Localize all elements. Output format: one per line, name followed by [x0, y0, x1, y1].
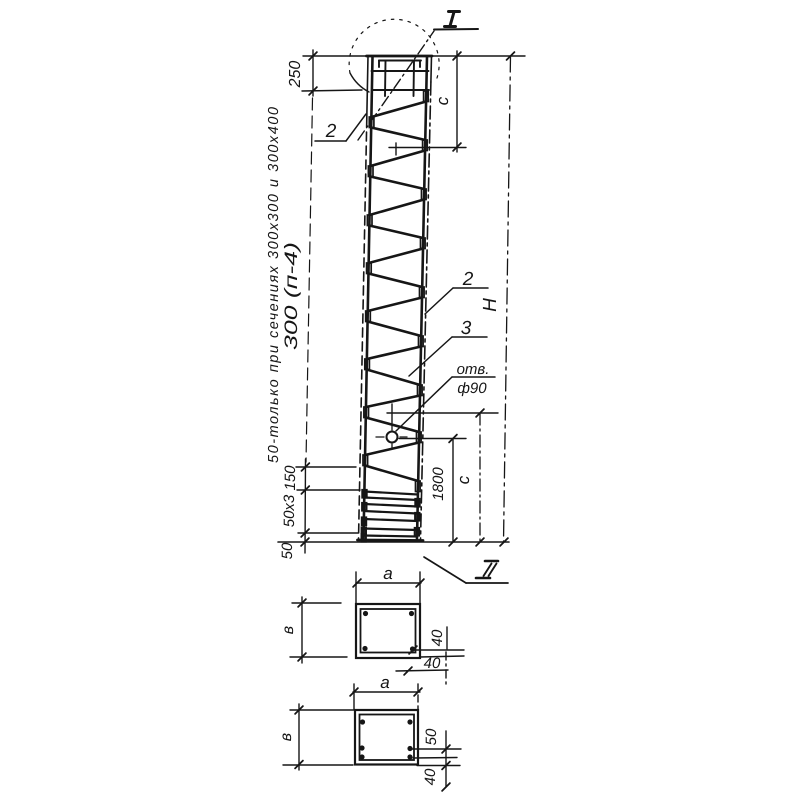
svg-text:50х3: 50х3 — [281, 494, 298, 527]
svg-text:отв.: отв. — [457, 361, 490, 378]
svg-text:40: 40 — [429, 629, 446, 646]
svg-text:300 (п-4): 300 (п-4) — [281, 242, 301, 350]
svg-text:40: 40 — [424, 655, 441, 672]
svg-text:в: в — [280, 626, 297, 634]
svg-text:3: 3 — [461, 318, 472, 339]
svg-text:250: 250 — [287, 61, 304, 89]
svg-text:ф90: ф90 — [457, 380, 487, 397]
svg-text:50: 50 — [423, 728, 440, 745]
svg-text:1800: 1800 — [430, 467, 447, 501]
svg-text:40: 40 — [422, 768, 439, 785]
svg-text:50: 50 — [279, 542, 296, 559]
svg-text:c: c — [454, 475, 473, 484]
svg-text:H: H — [480, 298, 501, 312]
svg-text:c: c — [433, 96, 452, 105]
svg-text:2: 2 — [462, 269, 474, 290]
svg-text:a: a — [383, 564, 392, 583]
svg-text:150: 150 — [282, 465, 299, 491]
svg-text:2: 2 — [325, 121, 337, 142]
svg-text:в: в — [278, 733, 295, 741]
svg-text:50-только при сечениях 300х300: 50-только при сечениях 300х300 и 300х400 — [266, 107, 282, 463]
svg-text:a: a — [380, 673, 389, 692]
